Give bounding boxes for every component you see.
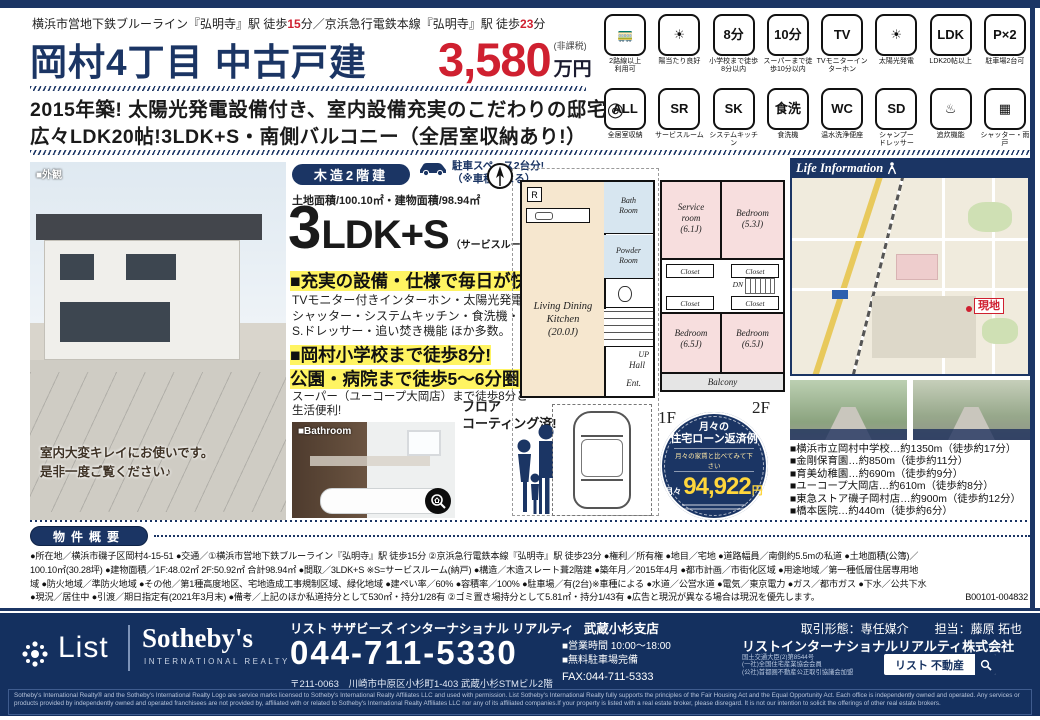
- feature-label: 太陽光発電: [879, 58, 914, 66]
- access-minutes-1: 15: [287, 17, 300, 31]
- feature-icon-row-2: ALL全居室収納 SRサービスルーム SKシステムキッチン 食洗食洗機 WC温水…: [598, 88, 1032, 148]
- decor: [581, 435, 623, 437]
- feature-solar: ☀太陽光発電: [869, 14, 923, 74]
- exterior-caption-line1: 室内大変キレイにお使いです。: [40, 444, 213, 463]
- wavy-divider: [30, 150, 1030, 155]
- room-bedroom-65-left: Bedroom (6.5J): [662, 312, 722, 372]
- decor: [913, 429, 1030, 440]
- point2-title-text: ■岡村小学校まで徒歩8分!: [290, 345, 491, 365]
- structure-badge: 木造2階建: [292, 164, 410, 185]
- decor: [310, 456, 430, 466]
- property-code: B00101-004832: [965, 591, 1032, 605]
- point2-subtitle: 公園・病院まで徒歩5〜6分圏内!: [290, 366, 543, 391]
- overview-badge: 物件概要: [30, 526, 148, 546]
- compass-icon: [486, 162, 514, 190]
- company-name: リストインターナショナルリアルティ株式会社: [742, 636, 1014, 655]
- feature-label: 駐車場2台可: [985, 58, 1024, 66]
- access-text-2: 分／京浜急行電鉄本線『弘明寺』駅 徒歩: [301, 17, 520, 31]
- feature-washlet: WC温水洗浄便座: [815, 88, 869, 148]
- sun-icon: ☀: [658, 14, 700, 56]
- price-number: 3,580: [438, 36, 551, 83]
- parking-icon: P×2: [984, 14, 1026, 56]
- access-minutes-2: 23: [520, 17, 533, 31]
- feature-tv-intercom: TVTVモニターインターホン: [815, 14, 869, 74]
- decor: [60, 254, 94, 280]
- label-entrance: Ent.: [626, 378, 641, 388]
- label-dn: DN: [733, 280, 743, 289]
- room-refrigerator: R: [527, 187, 542, 202]
- exterior-photo: ■外観 室内大変キレイにお使いです。 是非一度ご覧ください♪: [30, 162, 286, 520]
- footer-top-rule: [0, 608, 1040, 611]
- washlet-icon: WC: [821, 88, 863, 130]
- label-up: UP: [638, 350, 649, 359]
- agent-name: 担当：藤原 拓也: [935, 620, 1022, 637]
- point2-subtitle-text: 公園・病院まで徒歩5〜6分圏内!: [290, 369, 543, 389]
- tv-intercom-icon: TV: [821, 14, 863, 56]
- system-kitchen-icon: SK: [713, 88, 755, 130]
- overview-line: 域 ●防火地域／準防火地域 ●その他／第1種高度地区、宅地造成工事規制区域、緑化…: [30, 578, 1032, 592]
- floorplan-2f: Service room (6.1J) Bedroom (5.3J) Close…: [660, 180, 785, 392]
- layout-number: 3: [288, 198, 321, 258]
- layout-type: LDK+S: [321, 213, 448, 258]
- feature-sunny: ☀陽当たり良好: [652, 14, 706, 74]
- overview-text: ●所在地／横浜市磯子区岡村4-15-51 ●交通／①横浜市営地下鉄ブルーライン『…: [30, 550, 1032, 605]
- reheat-bath-icon: ♨: [930, 88, 972, 130]
- overview-line: ●所在地／横浜市磯子区岡村4-15-51 ●交通／①横浜市営地下鉄ブルーライン『…: [30, 550, 1032, 564]
- sothebys-logo-text: Sotheby's: [142, 623, 253, 654]
- office-hours: ■営業時間 10:00〜18:00 ■無料駐車場完備: [562, 640, 671, 668]
- feature-school: 8分小学校まで徒歩 8分以内: [707, 14, 761, 74]
- dishwasher-icon: 食洗: [767, 88, 809, 130]
- list-logo-text: List: [58, 631, 109, 665]
- floor-label-2f: 2F: [752, 398, 770, 418]
- dotted-divider: [30, 520, 1030, 522]
- feature-two-lines: 🚃2路線以上 利用可: [598, 14, 652, 74]
- neighborhood-photo-2: [913, 380, 1030, 440]
- toilet-icon: [618, 286, 632, 302]
- flyer-page: 横浜市営地下鉄ブルーライン『弘明寺』駅 徒歩15分／京浜急行電鉄本線『弘明寺』駅…: [0, 0, 1040, 720]
- life-information-header: Life Information: [790, 158, 1030, 178]
- life-item: ■ユーコープ大岡店…約610m（徒歩約8分）: [790, 481, 1034, 493]
- zoom-photo-icon: [425, 488, 451, 514]
- room-toilet: [604, 280, 653, 308]
- search-icon: [980, 659, 992, 671]
- search-box[interactable]: リスト 不動産: [884, 654, 996, 675]
- station-access-line: 横浜市営地下鉄ブルーライン『弘明寺』駅 徒歩15分／京浜急行電鉄本線『弘明寺』駅…: [32, 15, 545, 32]
- room-bedroom-65-right: Bedroom (6.5J): [722, 312, 783, 372]
- phone-number: 044-711-5330: [290, 634, 518, 672]
- train-icon: 🚃: [604, 14, 646, 56]
- shutter-icon: ▦: [984, 88, 1026, 130]
- bathroom-photo: ■Bathroom: [292, 422, 455, 518]
- decor: [535, 212, 553, 220]
- feature-label: 全居室収納: [608, 132, 643, 140]
- feature-label: 追炊機能: [937, 132, 965, 140]
- access-text-1: 横浜市営地下鉄ブルーライン『弘明寺』駅 徒歩: [32, 17, 287, 31]
- license-line: (公社)首都圏不動産公正取引協議会加盟: [742, 669, 853, 676]
- license-line: (一社)全国住宅産業協会会員: [742, 661, 853, 668]
- map-school-block: [872, 296, 976, 358]
- closet: Closet: [731, 296, 779, 310]
- room-service: Service room (6.1J): [662, 182, 722, 260]
- decor: [60, 302, 170, 342]
- search-keyword: リスト 不動産: [884, 657, 975, 673]
- map-park-area: [982, 318, 1018, 344]
- label-hall: Hall: [629, 360, 645, 370]
- exterior-caption: 室内大変キレイにお使いです。 是非一度ご覧ください♪: [40, 444, 213, 482]
- logo-divider: [128, 625, 130, 671]
- feature-shampoo-dresser: SDシャンプー ドレッサー: [869, 88, 923, 148]
- feature-parking2: P×2駐車場2台可: [978, 14, 1032, 74]
- footer: List Sotheby's INTERNATIONAL REALTY リスト …: [0, 613, 1040, 716]
- closet: Closet: [666, 264, 714, 278]
- feature-super: 10分スーパーまで徒歩10分以内: [761, 14, 815, 74]
- hours-line: ■営業時間 10:00〜18:00: [562, 640, 671, 654]
- closet: Closet: [731, 264, 779, 278]
- overview-dotted-rule: [154, 535, 1030, 537]
- overview-line-text: ●現況／居住中 ●引渡／期日指定有(2021年3月末) ●備考／上記のほか私道持…: [30, 591, 820, 605]
- deal-type: 取引形態：専任媒介: [801, 620, 909, 637]
- feature-serviceroom: SRサービスルーム: [652, 88, 706, 148]
- closet: Closet: [666, 296, 714, 310]
- decor: [664, 416, 764, 516]
- shampoo-dresser-icon: SD: [875, 88, 917, 130]
- life-item: ■東急ストア磯子岡村店…約900m（徒歩約12分）: [790, 494, 1034, 506]
- life-item: ■橋本医院…約440m（徒歩約6分）: [790, 506, 1034, 518]
- map-station-marker: [832, 290, 848, 299]
- room-powder: Powder Room: [604, 235, 653, 279]
- feature-label: システムキッチン: [707, 132, 761, 148]
- point2-title: ■岡村小学校まで徒歩8分!: [290, 342, 491, 367]
- feature-label: 食洗機: [777, 132, 798, 140]
- life-item: ■横浜市立岡村中学校…約1350m（徒歩約17分）: [790, 444, 1034, 456]
- exterior-caption-line2: 是非一度ご覧ください♪: [40, 463, 213, 482]
- feature-label: 温水洗浄便座: [821, 132, 863, 140]
- search-button[interactable]: [975, 654, 996, 675]
- floorplan-1f: Living Dining Kitchen (20.0J) R Bath Roo…: [520, 180, 655, 398]
- overview-line: 100.10㎡(30.28坪) ●建物面積／1F:48.02㎡ 2F:50.92…: [30, 564, 1032, 578]
- loan-example-badge: 月々の 住宅ローン返済例 月々の家賃と比べてみて下さい 月々 94,922 円: [660, 412, 768, 520]
- feature-label: LDK20帖以上: [929, 58, 971, 66]
- feature-label: 小学校まで徒歩 8分以内: [709, 58, 758, 74]
- decor: [581, 439, 623, 477]
- catch-copy-line2: 広々LDK20帖!3LDK+S・南側バルコニー（全居室収納あり!）: [30, 120, 586, 149]
- room-bedroom-53: Bedroom (5.3J): [722, 182, 783, 260]
- decor: [790, 429, 907, 440]
- feature-shutter: ▦シャッター・雨戸: [978, 88, 1032, 148]
- feature-reheat: ♨追炊機能: [924, 88, 978, 148]
- exterior-photo-tag: ■外観: [36, 166, 62, 181]
- ldk-icon: LDK: [930, 14, 972, 56]
- feature-dishwasher: 食洗食洗機: [761, 88, 815, 148]
- feature-label: シャンプー ドレッサー: [879, 132, 914, 148]
- map-site-dot: [966, 306, 972, 312]
- feature-label: シャッター・雨戸: [978, 132, 1032, 148]
- map-facility-block: [896, 254, 938, 280]
- service-room-icon: SR: [658, 88, 700, 130]
- decor: [30, 372, 286, 512]
- life-information-title: Life Information: [796, 161, 883, 176]
- kitchen-counter: [526, 208, 590, 223]
- walking-person-icon: [887, 162, 897, 175]
- map-site-label: 現地: [974, 298, 1004, 314]
- stairs-2f: [745, 278, 775, 294]
- top-border-bar: [0, 0, 1040, 8]
- legal-disclaimer: Sotheby's International Realty® and the …: [8, 689, 1032, 715]
- bathroom-photo-tag: ■Bathroom: [298, 426, 351, 437]
- overview-line: ●現況／居住中 ●引渡／期日指定有(2021年3月末) ●備考／上記のほか私道持…: [30, 591, 1032, 605]
- fax-number: FAX:044-711-5333: [562, 671, 654, 683]
- office-address: 〒211-0063 川崎市中原区小杉町1-403 武蔵小杉STMビル2階: [290, 676, 553, 690]
- feature-label: 2路線以上 利用可: [609, 58, 641, 74]
- property-title: 岡村4丁目 中古戸建: [30, 32, 367, 86]
- school-walk-icon: 8分: [713, 14, 755, 56]
- wavy-divider: [30, 86, 586, 91]
- decor: [126, 254, 176, 280]
- price-unit: 万円: [554, 54, 592, 81]
- feature-label: 陽当たり良好: [658, 58, 700, 66]
- feature-ldk20: LDKLDK20帖以上: [924, 14, 978, 74]
- access-text-3: 分: [533, 17, 545, 31]
- map-park-area: [968, 202, 1012, 232]
- decor: [581, 479, 623, 481]
- supermarket-icon: 10分: [767, 14, 809, 56]
- room-bath: Bath Room: [604, 182, 653, 234]
- decor: [407, 430, 441, 456]
- feature-kitchen: SKシステムキッチン: [707, 88, 761, 148]
- catch-copy-line1: 2015年築! 太陽光発電設備付き、室内設備充実のこだわりの邸宅◎: [30, 93, 624, 122]
- neighborhood-photo-1: [790, 380, 907, 440]
- sothebys-logo-subtext: INTERNATIONAL REALTY: [144, 657, 290, 666]
- car-icon: [418, 160, 448, 176]
- feature-label: TVモニターインターホン: [815, 58, 869, 74]
- feature-label: サービスルーム: [655, 132, 704, 140]
- list-logo-icon: [18, 637, 52, 671]
- life-information-list: ■横浜市立岡村中学校…約1350m（徒歩約17分） ■金剛保育園…約850m（徒…: [790, 444, 1034, 518]
- life-item: ■金剛保育園…約850m（徒歩約11分）: [790, 456, 1034, 468]
- price-block: 3,580 (非課税) 万円: [438, 36, 592, 83]
- solar-panel-icon: ☀: [875, 14, 917, 56]
- license-lines: 国土交通大臣(2)第8544号 (一社)全国住宅産業協会会員 (公社)首都圏不動…: [742, 654, 853, 676]
- parking-space-outline: [552, 404, 652, 516]
- location-map: 現地: [790, 178, 1030, 376]
- room-balcony: Balcony: [662, 372, 783, 390]
- magnifier-house-icon: [430, 493, 446, 509]
- price-tax-note: (非課税): [554, 39, 592, 52]
- life-item: ■育美幼稚園…約690m（徒歩約9分）: [790, 469, 1034, 481]
- free-parking-line: ■無料駐車場完備: [562, 654, 671, 668]
- feature-icon-row-1: 🚃2路線以上 利用可 ☀陽当たり良好 8分小学校まで徒歩 8分以内 10分スーパ…: [598, 14, 1032, 74]
- branch-name: 武蔵小杉支店: [584, 618, 659, 637]
- stairs-1f: [604, 309, 653, 347]
- decor: [36, 214, 262, 240]
- feature-label: スーパーまで徒歩10分以内: [761, 58, 815, 74]
- car-topview-icon: [573, 411, 631, 509]
